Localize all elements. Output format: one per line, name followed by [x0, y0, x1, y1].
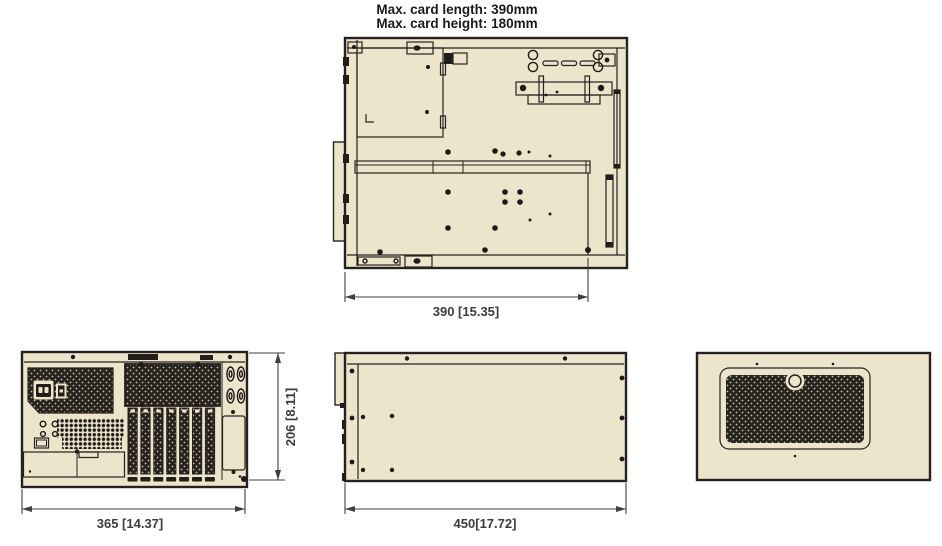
brand-label — [128, 354, 158, 360]
chassis-dimension-drawing: Max. card length: 390mm Max. card height… — [0, 0, 942, 546]
vent-perforation — [57, 418, 124, 438]
top-width-dim-label: 390 [15.35] — [433, 304, 500, 319]
thumbscrew-hole — [789, 375, 801, 387]
dimension-450: 450[17.72] — [345, 483, 626, 531]
side-view: 450[17.72] — [335, 353, 626, 531]
max-card-height-note: Max. card height: 180mm — [376, 16, 537, 31]
power-supply-area — [28, 368, 113, 413]
max-card-length-note: Max. card length: 390mm — [376, 2, 537, 17]
front-height-dim-label: 206 [8.11] — [283, 388, 298, 447]
top-view-outline — [345, 38, 627, 268]
expansion-slot-brackets — [128, 408, 215, 482]
dimension-365: 365 [14.37] — [22, 489, 245, 531]
side-length-dim-label: 450[17.72] — [454, 516, 517, 531]
top-view: 390 [15.35] — [334, 38, 628, 319]
fan-grille — [125, 362, 220, 407]
dimension-206: 206 [8.11] — [249, 353, 298, 480]
front-width-dim-label: 365 [14.37] — [97, 516, 164, 531]
side-view-outline — [345, 353, 626, 481]
vent-perforation-lower — [62, 436, 122, 449]
small-label — [200, 355, 213, 360]
mechanical-drawing-page: Max. card length: 390mm Max. card height… — [0, 0, 942, 546]
top-cover-view — [697, 353, 930, 480]
rear-panel-view: 365 [14.37] 206 [8.11] — [22, 352, 298, 531]
